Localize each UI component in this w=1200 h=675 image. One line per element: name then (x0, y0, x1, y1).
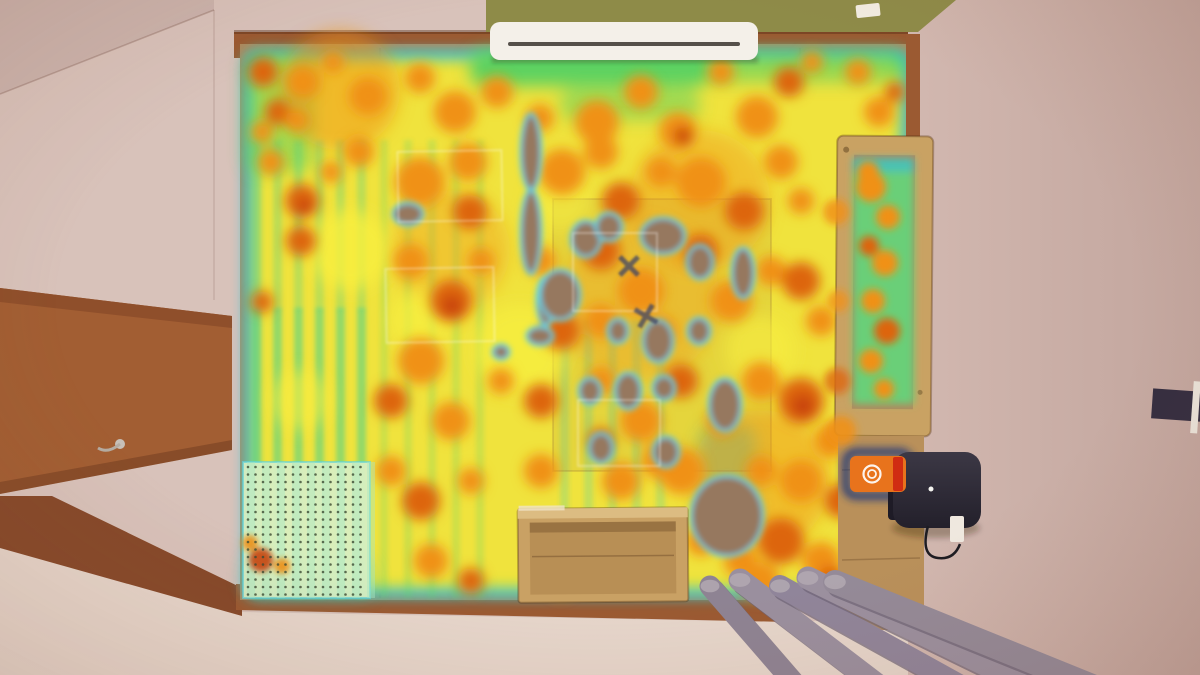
vignette (0, 0, 1200, 675)
room-photo (0, 0, 1200, 675)
